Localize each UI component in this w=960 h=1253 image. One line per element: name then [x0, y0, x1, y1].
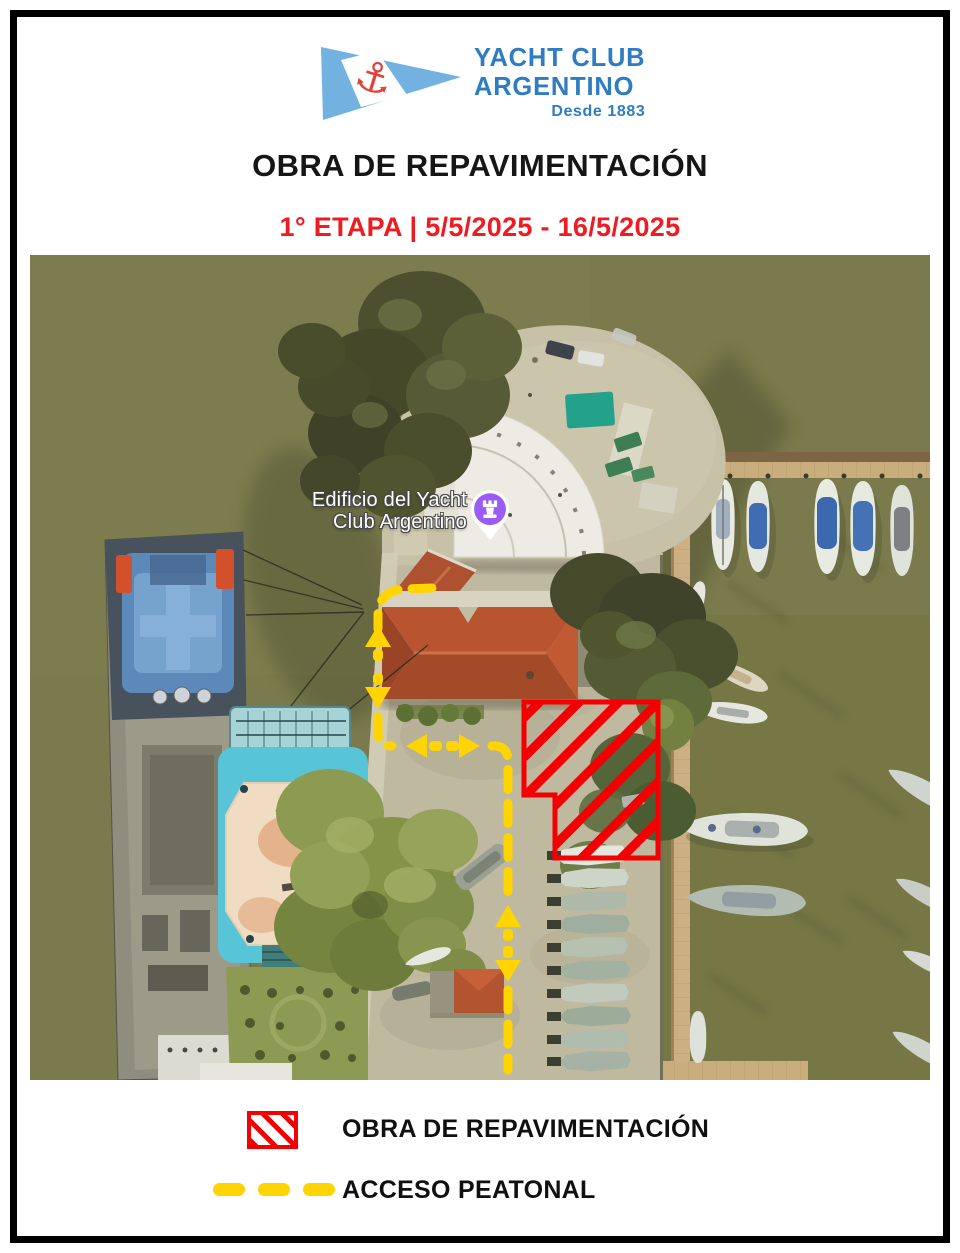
legend-label-pedestrian-path: ACCESO PEATONAL: [342, 1176, 596, 1205]
logo-name-line1: YACHT CLUB: [474, 44, 645, 73]
stage-date-line: 1° ETAPA | 5/5/2025 - 16/5/2025: [0, 212, 960, 243]
yellow-dash: [303, 1183, 335, 1196]
poi-label-line1: Edificio del Yacht: [312, 489, 467, 511]
small-red-building: [430, 969, 504, 1018]
yellow-dash: [213, 1183, 245, 1196]
logo-name-line2: ARGENTINO: [474, 73, 645, 102]
poi-label: Edificio del Yacht Club Argentino: [312, 489, 467, 533]
landmark-pin-icon: [470, 489, 510, 543]
poi-label-line2: Club Argentino: [312, 511, 467, 533]
legend-swatch-pedestrian-path: [213, 1183, 335, 1196]
flyer-page: ⚓ YACHT CLUB ARGENTINO Desde 1883 OBRA D…: [0, 0, 960, 1253]
logo-tagline: Desde 1883: [474, 103, 645, 121]
burgee-flag-icon: ⚓: [318, 44, 468, 126]
yacht-club-logo: ⚓ YACHT CLUB ARGENTINO Desde 1883: [318, 44, 645, 126]
legend-label-work-zone: OBRA DE REPAVIMENTACIÓN: [342, 1115, 709, 1144]
yellow-dash: [258, 1183, 290, 1196]
aerial-map: [30, 255, 930, 1080]
legend-swatch-work-zone: [247, 1111, 298, 1149]
aerial-map-graphic: [30, 255, 930, 1080]
page-title: OBRA DE REPAVIMENTACIÓN: [0, 148, 960, 184]
